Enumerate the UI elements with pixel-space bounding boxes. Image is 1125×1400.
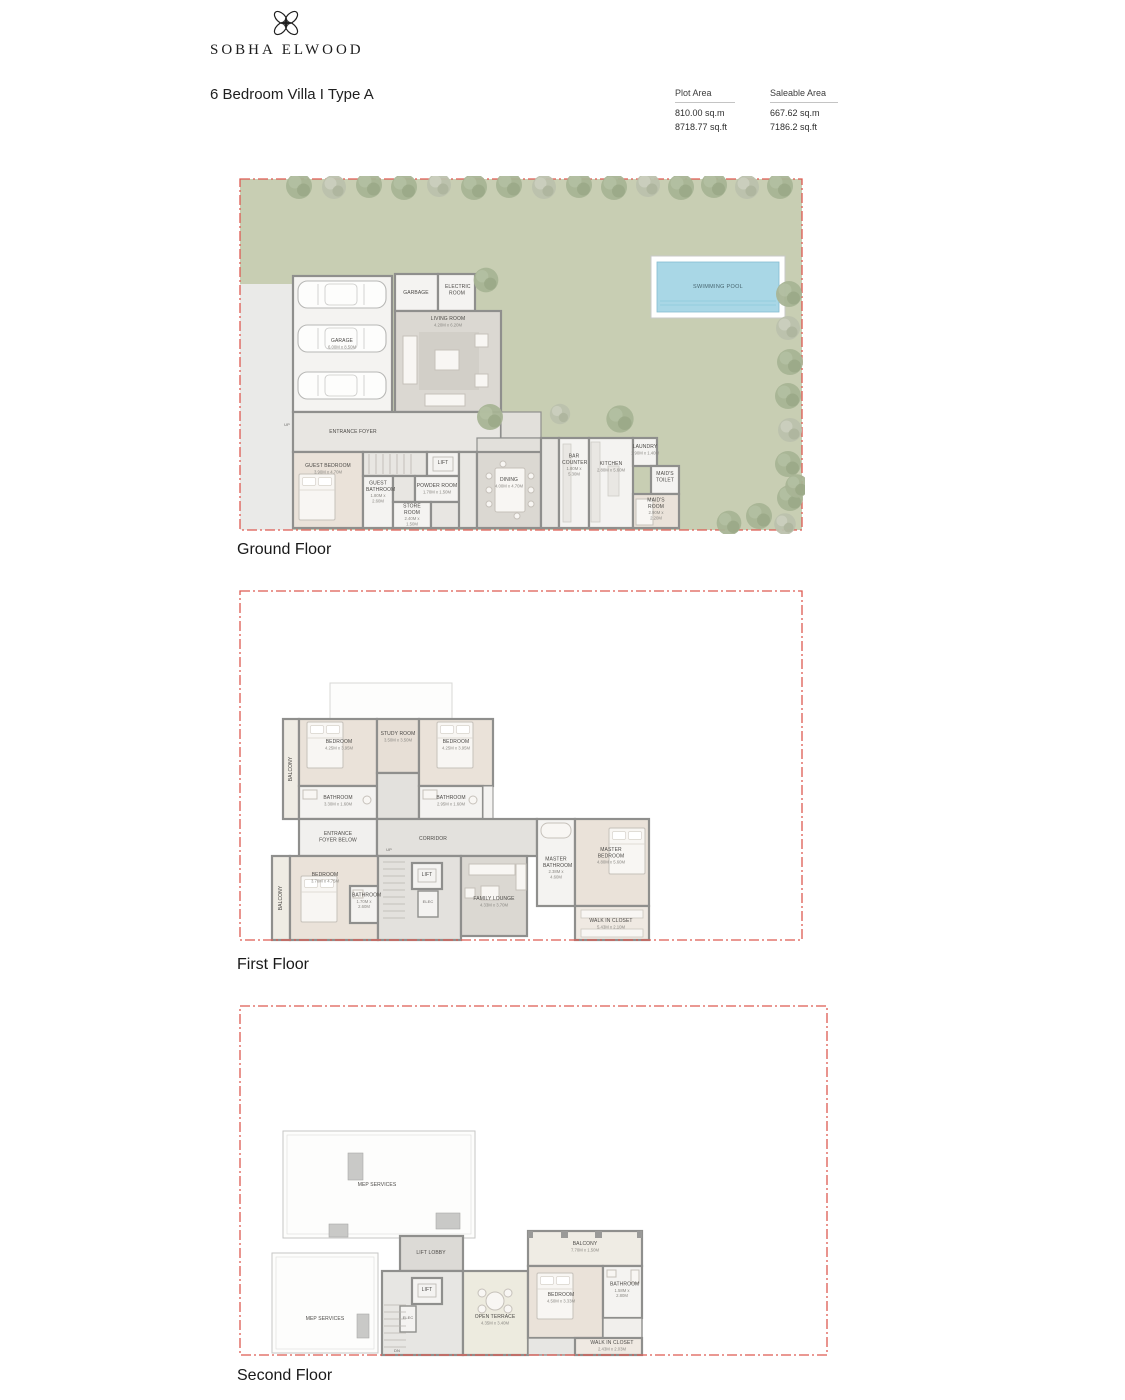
room-dim: 5.43M x 2.10M: [589, 924, 632, 929]
second-floor-name: Second Floor: [237, 1367, 332, 1385]
room-name: LIVING ROOM: [431, 316, 465, 322]
label-dn: DN: [394, 1349, 400, 1354]
room-name: MAID'S ROOM: [647, 497, 664, 509]
room-dim: 3.50M x 3.50M: [381, 737, 416, 742]
room-label-lift: LIFT: [422, 1287, 433, 1293]
room-dim: 4.25M x 3.95M: [325, 745, 353, 750]
room-label-laundry: LAUNDRY1.90M x 1.40M: [631, 444, 659, 456]
room-name: GARBAGE: [403, 290, 428, 296]
ground-floor-name: Ground Floor: [237, 541, 331, 559]
study-room: [377, 719, 419, 773]
room-name: ELEC: [403, 1316, 414, 1321]
vanity: [303, 790, 317, 799]
stair-hall: [363, 452, 427, 476]
bathtub: [541, 823, 571, 838]
room-label-bathroom-2: BATHROOM2.95M x 1.60M: [436, 795, 465, 807]
saleable-area-block: Saleable Area 667.62 sq.m 7186.2 sq.ft: [770, 88, 838, 134]
room-name: BATHROOM: [610, 1282, 639, 1288]
room-dim: 4.50M x 3.33M: [547, 1298, 575, 1303]
room-label-entrance-foyer: ENTRANCE FOYER: [329, 429, 377, 435]
roof-outline: [330, 683, 452, 719]
room-label-walk-in-closet: WALK IN CLOSET5.43M x 2.10M: [589, 918, 632, 930]
terrace-chair: [478, 1305, 486, 1313]
room-label-guest-bathroom: GUEST BATHROOM1.80M x 2.60M: [366, 480, 390, 503]
car-icon: [298, 281, 386, 308]
room-label-mep-services: MEP SERVICES: [358, 1182, 397, 1188]
vanity: [423, 790, 437, 799]
plot-area-sqm: 810.00 sq.m: [675, 107, 735, 121]
wc: [363, 796, 371, 804]
room-name: BATHROOM: [323, 795, 352, 801]
room-dim: 6.00M x 8.50M: [328, 344, 356, 349]
room-name: BATHROOM: [436, 795, 465, 801]
room-name: DINING: [500, 477, 518, 483]
brand-emblem-icon: [269, 6, 303, 40]
brand-logo: SOBHA ELWOOD: [210, 6, 362, 59]
kitchen-counter: [591, 442, 600, 522]
sofa: [403, 336, 417, 384]
armchair: [475, 334, 488, 347]
room-name: LIFT: [422, 872, 433, 878]
saleable-area-sqm: 667.62 sq.m: [770, 107, 838, 121]
page-title: 6 Bedroom Villa I Type A: [210, 86, 374, 103]
room-dim: 1.80M x 2.60M: [366, 493, 390, 504]
room-dim: 7.70M x 1.50M: [571, 1247, 599, 1252]
room-label-open-terrace: OPEN TERRACE4.35M x 3.40M: [475, 1314, 516, 1326]
room-label-study-room: STUDY ROOM3.50M x 3.50M: [381, 731, 416, 743]
room-dim: 2.40M x 1.50M: [401, 516, 423, 527]
room-dim: 2.43M x 2.03M: [590, 1346, 633, 1351]
room-label-bar-counter: BAR COUNTER1.80M x 5.30M: [562, 453, 586, 476]
room-dim: 2.90M x 2.20M: [645, 510, 667, 521]
room-name: BEDROOM: [312, 872, 339, 878]
room-label-elec: ELEC: [403, 1316, 414, 1321]
lounge-sofa: [469, 864, 515, 875]
room-label-balcony-2: BALCONY: [278, 886, 284, 911]
room-name: LIFT: [422, 1287, 433, 1293]
corridor: [459, 452, 477, 528]
room-label-bathroom-3: BATHROOM1.70M x 2.60M: [352, 893, 376, 910]
plot-area-sqft: 8718.77 sq.ft: [675, 121, 735, 135]
room-label-guest-bedroom: GUEST BEDROOM3.90M x 4.70M: [305, 463, 351, 475]
room-dim: 4.80M x 5.60M: [596, 860, 626, 865]
entrance-foyer: [293, 412, 501, 452]
room-dim: 1.70M x 1.50M: [417, 489, 458, 494]
sofa: [425, 394, 465, 406]
label-up: UP: [284, 423, 290, 428]
room-dim: 1.90M x 1.40M: [631, 450, 659, 455]
first-floor-drawing: [237, 588, 805, 943]
room-label-electric-room: ELECTRIC ROOM: [445, 284, 469, 297]
room-dim: 4.20M x 6.20M: [431, 322, 465, 327]
room-name: ELEC: [423, 900, 434, 905]
room-name: LIFT: [438, 460, 449, 466]
wardrobe: [581, 929, 643, 937]
room-label-kitchen: KITCHEN2.80M x 5.60M: [597, 461, 625, 473]
room-name: MEP SERVICES: [306, 1316, 345, 1322]
guest-bed: [299, 474, 335, 520]
study-hall: [377, 773, 419, 819]
room-dim: 4.35M x 3.40M: [475, 1320, 516, 1325]
room-dim: 3.30M x 1.60M: [323, 801, 352, 806]
room-label-balcony: BALCONY7.70M x 1.50M: [571, 1241, 599, 1253]
room-name: STORE ROOM: [403, 503, 421, 515]
room-name: FAMILY LOUNGE: [473, 896, 514, 902]
terrace-table: [486, 1292, 504, 1310]
wc: [469, 796, 477, 804]
room-name: MASTER BEDROOM: [598, 847, 625, 859]
hall: [393, 476, 415, 502]
room-label-family-lounge: FAMILY LOUNGE4.33M x 3.70M: [473, 896, 514, 908]
terrace-chair: [504, 1289, 512, 1297]
saleable-area-values: 667.62 sq.m 7186.2 sq.ft: [770, 107, 838, 134]
brand-name: SOBHA ELWOOD: [210, 42, 362, 59]
open-terrace: [463, 1271, 528, 1355]
room-dim: 1.58M x 2.80M: [610, 1288, 634, 1299]
room-dim: 4.00M x 4.70M: [495, 483, 523, 488]
room-dim: 3.70M x 4.75M: [311, 878, 339, 883]
corridor: [377, 819, 537, 856]
patio-2: [477, 438, 541, 452]
first-floor-name: First Floor: [237, 956, 309, 974]
room-name: ENTRANCE FOYER BELOW: [319, 831, 357, 843]
second-floor-drawing: [237, 1003, 830, 1358]
room-label-garbage: GARBAGE: [403, 290, 428, 296]
room-label-maids-room: MAID'S ROOM2.90M x 2.20M: [645, 497, 667, 520]
floorplan-page: SOBHA ELWOOD 6 Bedroom Villa I Type A Pl…: [0, 0, 1125, 1400]
room-name: WALK IN CLOSET: [589, 918, 632, 924]
room-name: BALCONY: [573, 1241, 598, 1247]
first-floor-plan: BALCONY BEDROOM4.25M x 3.95M BATHROOM3.3…: [237, 588, 805, 943]
room-name: ELECTRIC ROOM: [445, 284, 471, 296]
room-name: MAID'S TOILET: [656, 471, 674, 483]
room-label-bedroom-3: BEDROOM3.70M x 4.75M: [311, 872, 339, 884]
plot-area-label: Plot Area: [675, 88, 735, 103]
room-label-bathroom: BATHROOM1.58M x 2.80M: [610, 1282, 634, 1299]
driveway: [240, 284, 293, 530]
closet-strip: [603, 1318, 642, 1338]
wardrobe: [581, 910, 643, 918]
car-icon: [298, 372, 386, 399]
room-name: GUEST BEDROOM: [305, 463, 351, 469]
room-name: DN: [394, 1349, 400, 1354]
room-name: CORRIDOR: [419, 836, 447, 842]
room-dim: 4.25M x 3.95M: [442, 745, 470, 750]
dining-table: [495, 468, 525, 512]
room-name: MEP SERVICES: [358, 1182, 397, 1188]
room-label-maids-toilet: MAID'S TOILET: [655, 471, 675, 484]
room-name: BATHROOM: [352, 893, 381, 899]
room-label-bedroom-2: BEDROOM4.25M x 3.95M: [442, 739, 470, 751]
room-label-balcony: BALCONY: [288, 757, 294, 782]
room-label-lift-lobby: LIFT LOBBY: [416, 1250, 445, 1256]
room-name: KITCHEN: [600, 461, 623, 467]
room-dim: 1.70M x 2.60M: [352, 899, 376, 910]
room-dim: 2.38M x 4.60M: [543, 869, 569, 880]
room-dim: 3.90M x 4.70M: [305, 469, 351, 474]
room-name: LAUNDRY: [633, 444, 658, 450]
room-label-store-room: STORE ROOM2.40M x 1.50M: [401, 503, 423, 526]
room-label-elec: ELEC: [423, 900, 434, 905]
connector: [541, 438, 559, 528]
room-dim: 4.33M x 3.70M: [473, 902, 514, 907]
room-label-corridor: CORRIDOR: [419, 836, 447, 842]
room-name: BEDROOM: [548, 1292, 575, 1298]
room-label-master-bedroom: MASTER BEDROOM4.80M x 5.60M: [596, 847, 626, 865]
closet-niche: [483, 786, 493, 819]
room-label-lift: LIFT: [422, 872, 433, 878]
saleable-area-label: Saleable Area: [770, 88, 838, 103]
vanity: [607, 1270, 616, 1277]
saleable-area-sqft: 7186.2 sq.ft: [770, 121, 838, 135]
room-dim: 1.80M x 5.30M: [562, 466, 586, 477]
ground-floor-plan: GARAGE6.00M x 8.50M GARBAGE ELECTRIC ROO…: [237, 176, 805, 534]
room-name: UP: [284, 423, 290, 428]
second-floor-plan: MEP SERVICES MEP SERVICES LIFT LOBBY LIF…: [237, 1003, 830, 1358]
room-name: OPEN TERRACE: [475, 1314, 516, 1320]
label-up: UP: [386, 848, 392, 853]
patio: [501, 412, 541, 438]
room-label-bathroom-1: BATHROOM3.30M x 1.60M: [323, 795, 352, 807]
room-label-mep-services-2: MEP SERVICES: [306, 1316, 345, 1322]
room-name: STUDY ROOM: [381, 731, 416, 737]
room-label-bedroom-1: BEDROOM4.25M x 3.95M: [325, 739, 353, 751]
room-name: SWIMMING POOL: [693, 284, 743, 290]
terrace-chair: [504, 1305, 512, 1313]
room-name: BAR COUNTER: [562, 453, 587, 465]
room-label-powder-room: POWDER ROOM1.70M x 1.50M: [417, 483, 458, 495]
room-name: WALK IN CLOSET: [590, 1340, 633, 1346]
room-label-master-bathroom: MASTER BATHROOM2.38M x 4.60M: [543, 856, 569, 879]
room-label-garage: GARAGE6.00M x 8.50M: [328, 338, 356, 350]
room-label-lift: LIFT: [438, 460, 449, 466]
room-name: UP: [386, 848, 392, 853]
room-label-walk-in-closet: WALK IN CLOSET2.43M x 2.03M: [590, 1340, 633, 1352]
armchair: [475, 374, 488, 387]
plot-area-values: 810.00 sq.m 8718.77 sq.ft: [675, 107, 735, 134]
room-label-swimming-pool: SWIMMING POOL: [693, 284, 743, 291]
room-name: BEDROOM: [443, 739, 470, 745]
room-name: BEDROOM: [326, 739, 353, 745]
coffee-table: [435, 350, 459, 370]
room-label-entrance-foyer-below: ENTRANCE FOYER BELOW: [316, 831, 360, 844]
room-label-bedroom: BEDROOM4.50M x 3.33M: [547, 1292, 575, 1304]
room-label-dining: DINING4.00M x 4.70M: [495, 477, 523, 489]
room-name: MASTER BATHROOM: [543, 856, 572, 868]
hall-strip: [528, 1338, 575, 1355]
room-dim: 2.95M x 1.60M: [436, 801, 465, 806]
room-label-living-room: LIVING ROOM4.20M x 6.20M: [431, 316, 465, 328]
lounge-sofa: [516, 864, 526, 890]
room-name: BALCONY: [288, 757, 294, 782]
room-name: LIFT LOBBY: [416, 1250, 445, 1256]
room-name: BALCONY: [278, 886, 284, 911]
plot-area-block: Plot Area 810.00 sq.m 8718.77 sq.ft: [675, 88, 735, 134]
terrace-chair: [478, 1289, 486, 1297]
room-dim: 2.80M x 5.60M: [597, 467, 625, 472]
room-name: POWDER ROOM: [417, 483, 458, 489]
room-name: GARAGE: [331, 338, 353, 344]
room-name: ENTRANCE FOYER: [329, 429, 377, 435]
